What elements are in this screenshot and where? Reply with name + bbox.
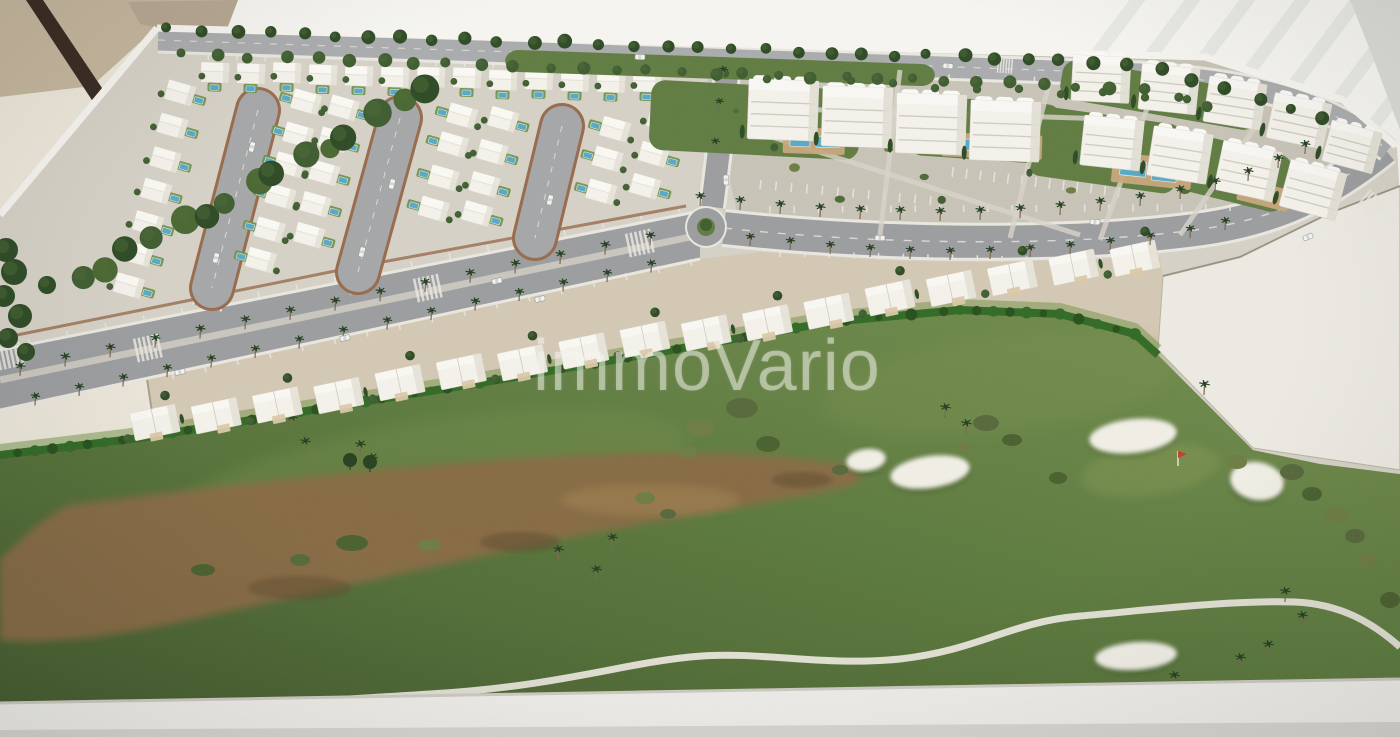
model-illustration: [0, 0, 1400, 737]
photo-grain: [0, 0, 1400, 737]
photo-architectural-model: immoVario: [0, 0, 1400, 737]
